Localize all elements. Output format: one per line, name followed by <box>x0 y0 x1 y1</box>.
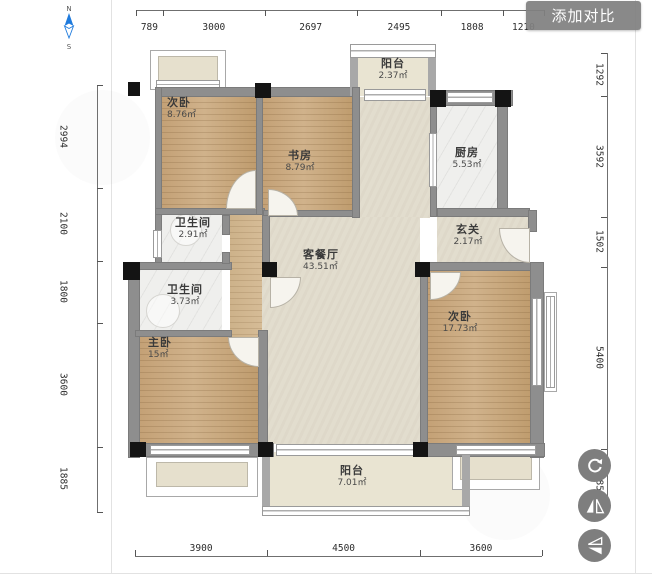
window <box>276 444 414 456</box>
bay-window-fill <box>158 56 218 81</box>
column <box>255 83 271 98</box>
column <box>415 262 430 277</box>
column <box>130 442 146 457</box>
flip-vertical-icon <box>585 536 605 556</box>
compass-south-label: S <box>60 43 78 51</box>
window <box>153 230 162 258</box>
floorplan-canvas[interactable] <box>0 0 652 584</box>
add-compare-button[interactable]: 添加对比 <box>526 1 641 30</box>
wall <box>258 330 268 444</box>
wall <box>135 330 232 337</box>
window <box>364 89 426 101</box>
wall <box>437 208 530 217</box>
window <box>262 506 470 516</box>
room-floor-balcony-bottom[interactable] <box>270 452 463 508</box>
flip-horizontal-button[interactable] <box>578 489 611 522</box>
wall <box>262 450 270 510</box>
window <box>429 133 437 187</box>
rotate-icon <box>585 456 605 476</box>
flip-vertical-button[interactable] <box>578 529 611 562</box>
window <box>447 92 493 103</box>
rotate-button[interactable] <box>578 449 611 482</box>
wall <box>128 262 232 270</box>
column <box>413 442 428 457</box>
floorplan-viewer: N S 添加对比 次卧8.76㎡书房8.79㎡阳台2.37㎡厨房5.53㎡玄关2… <box>0 0 652 584</box>
wall <box>155 208 265 215</box>
wall <box>428 262 531 271</box>
window <box>532 298 542 386</box>
wall <box>420 271 428 451</box>
window <box>350 44 436 58</box>
shower-fixture <box>170 214 202 246</box>
column <box>123 262 140 280</box>
bay-window-fill <box>156 462 248 487</box>
column <box>128 82 140 96</box>
window <box>546 296 555 388</box>
wall <box>222 215 230 235</box>
column <box>430 90 446 107</box>
room-floor-kitchen[interactable] <box>437 105 497 209</box>
column <box>262 262 277 277</box>
shower-fixture <box>146 294 180 328</box>
wall <box>256 87 263 215</box>
compass-arrow-icon <box>63 24 75 43</box>
wall <box>497 105 508 215</box>
flip-horizontal-icon <box>585 496 605 516</box>
wall <box>222 252 230 264</box>
column <box>258 442 273 457</box>
wall <box>462 450 470 510</box>
room-floor-living-arm[interactable] <box>360 97 430 218</box>
wall <box>352 87 360 218</box>
compass: N S <box>60 5 78 51</box>
room-floor-living[interactable] <box>262 217 420 444</box>
bay-window-fill <box>460 455 532 480</box>
column <box>495 90 511 107</box>
room-floor-corridor[interactable] <box>230 215 263 337</box>
compass-north-label: N <box>60 5 78 13</box>
window <box>150 445 250 455</box>
window <box>456 445 536 455</box>
wall <box>262 215 270 263</box>
wall <box>128 262 140 458</box>
